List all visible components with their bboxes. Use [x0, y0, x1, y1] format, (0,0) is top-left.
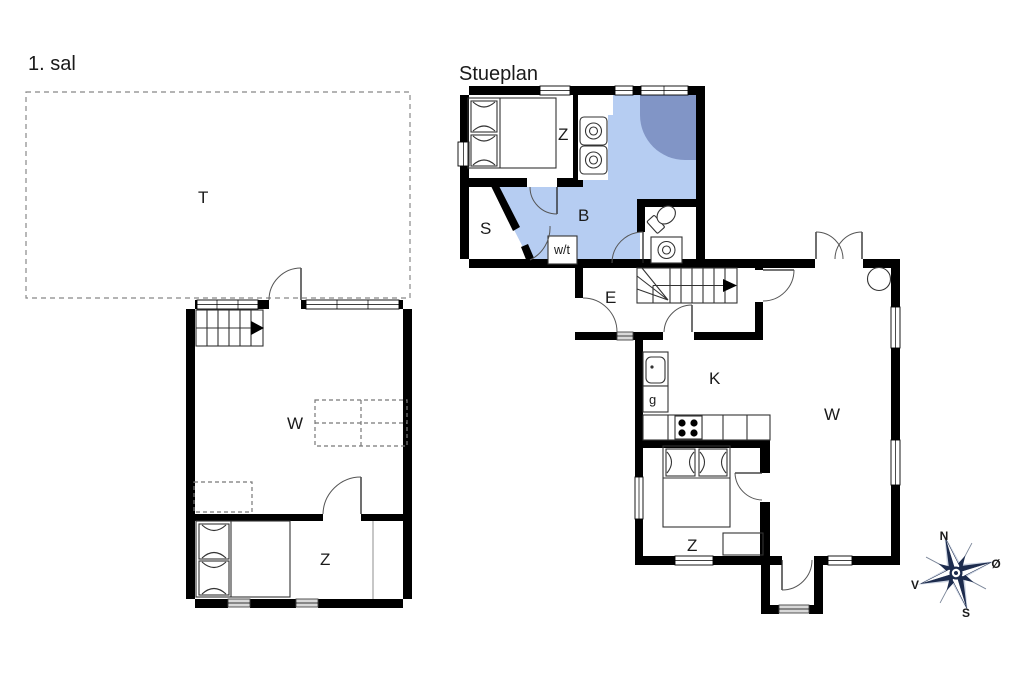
pillow	[699, 449, 727, 476]
toilet	[647, 202, 679, 233]
pillow-curves	[473, 136, 495, 165]
floorplan-drawing: 1. sal T	[0, 0, 1024, 682]
guest-label: g	[649, 392, 656, 407]
wardrobe-dashed	[194, 482, 252, 512]
kitchen-sink	[646, 357, 665, 383]
door-arc	[735, 473, 762, 500]
compass-star	[906, 523, 1006, 623]
burner	[678, 419, 685, 426]
loft-dashed-outline	[26, 92, 410, 298]
living-room-label: W	[287, 414, 303, 433]
stairs-direction-arrow	[723, 279, 737, 292]
floorplan-page: 1. sal T	[0, 0, 1024, 682]
ground-floor-title: Stueplan	[459, 63, 538, 85]
pillow	[666, 449, 695, 476]
kitchen-label: K	[709, 369, 721, 388]
ground-floor-plan: Stueplan	[458, 63, 900, 614]
door-arc	[782, 560, 812, 590]
pillow-curves	[202, 525, 226, 558]
pillow	[199, 524, 229, 559]
pillow-curves	[667, 452, 694, 473]
counter	[578, 95, 613, 115]
bedroom-bottom-bed	[663, 446, 763, 555]
washing-machine-drum	[663, 246, 671, 254]
closet	[723, 533, 763, 555]
bathroom-label: B	[578, 206, 589, 225]
compass-east-label: Ø	[991, 557, 1000, 571]
double-bed	[196, 521, 290, 597]
compass-south-label: S	[962, 606, 970, 620]
loft-room-label: T	[198, 188, 208, 207]
hall-label: S	[480, 219, 491, 238]
kitchen-counter-row	[643, 415, 770, 440]
bedroom-top-label: Z	[558, 125, 568, 144]
first-floor-plan: 1. sal T	[26, 53, 412, 608]
stove	[675, 416, 702, 439]
compass-rose: N Ø S V	[906, 523, 1006, 623]
door-arc	[323, 477, 361, 514]
bedroom-bottom-label: Z	[687, 536, 697, 555]
entry-stairs	[637, 268, 737, 303]
sink-drain	[650, 365, 653, 368]
washbasin-drain	[590, 127, 598, 135]
pillow-curves	[202, 562, 226, 594]
bedroom-top-bed	[468, 98, 556, 168]
bed-frame	[663, 446, 730, 527]
stairs-steps	[196, 310, 251, 346]
kitchen-fixtures	[643, 352, 770, 440]
french-door-arcs	[816, 232, 862, 259]
stairs-steps	[637, 268, 725, 303]
compass-west-label: V	[911, 578, 919, 592]
pillow-curves	[473, 102, 495, 131]
first-floor-stairs	[196, 310, 264, 346]
door-arc	[269, 268, 301, 300]
pillow	[471, 135, 497, 166]
door-arc	[763, 270, 794, 301]
pillow	[199, 561, 229, 595]
door-arc	[664, 305, 692, 332]
stairs-direction-arrow	[251, 321, 264, 335]
burner	[690, 429, 697, 436]
bed-frame	[468, 98, 556, 168]
first-floor-title: 1. sal	[28, 53, 76, 75]
burner	[678, 429, 685, 436]
washbasin-drain	[590, 156, 598, 164]
table-dashed-divider	[315, 400, 407, 446]
washer-dryer-label: w/t	[553, 243, 571, 257]
pillow	[471, 101, 497, 132]
wood-stove	[868, 268, 891, 291]
compass-north-label: N	[940, 529, 949, 543]
living-label: W	[824, 405, 840, 424]
burner	[690, 419, 697, 426]
bedroom-label: Z	[320, 550, 330, 569]
entry-label: E	[605, 288, 616, 307]
pillow-curves	[700, 452, 726, 473]
